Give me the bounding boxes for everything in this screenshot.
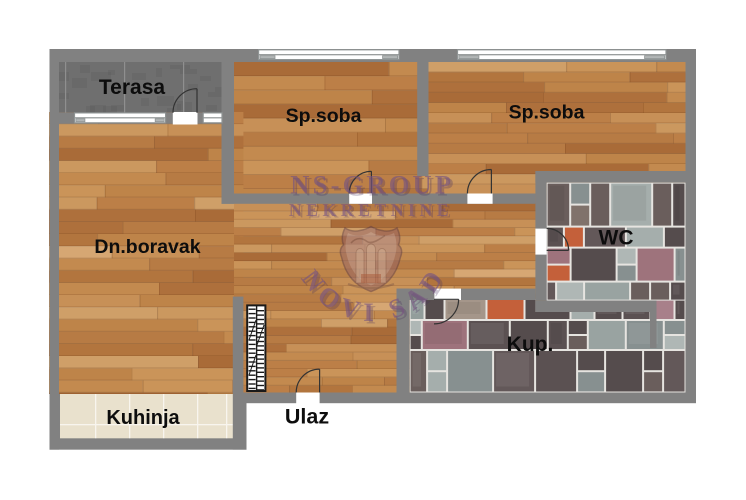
svg-text:NS-GROUP: NS-GROUP [290, 169, 454, 199]
svg-text:Kuhinja: Kuhinja [106, 407, 180, 429]
svg-text:Dn.boravak: Dn.boravak [94, 236, 200, 258]
svg-text:Terasa: Terasa [99, 76, 165, 99]
svg-text:Ulaz: Ulaz [285, 405, 329, 429]
svg-text:WC: WC [599, 227, 634, 250]
svg-text:Sp.soba: Sp.soba [509, 102, 585, 124]
svg-text:Kup.: Kup. [507, 333, 554, 356]
svg-text:NEKRETNINE: NEKRETNINE [289, 200, 453, 220]
svg-text:Sp.soba: Sp.soba [286, 105, 362, 127]
